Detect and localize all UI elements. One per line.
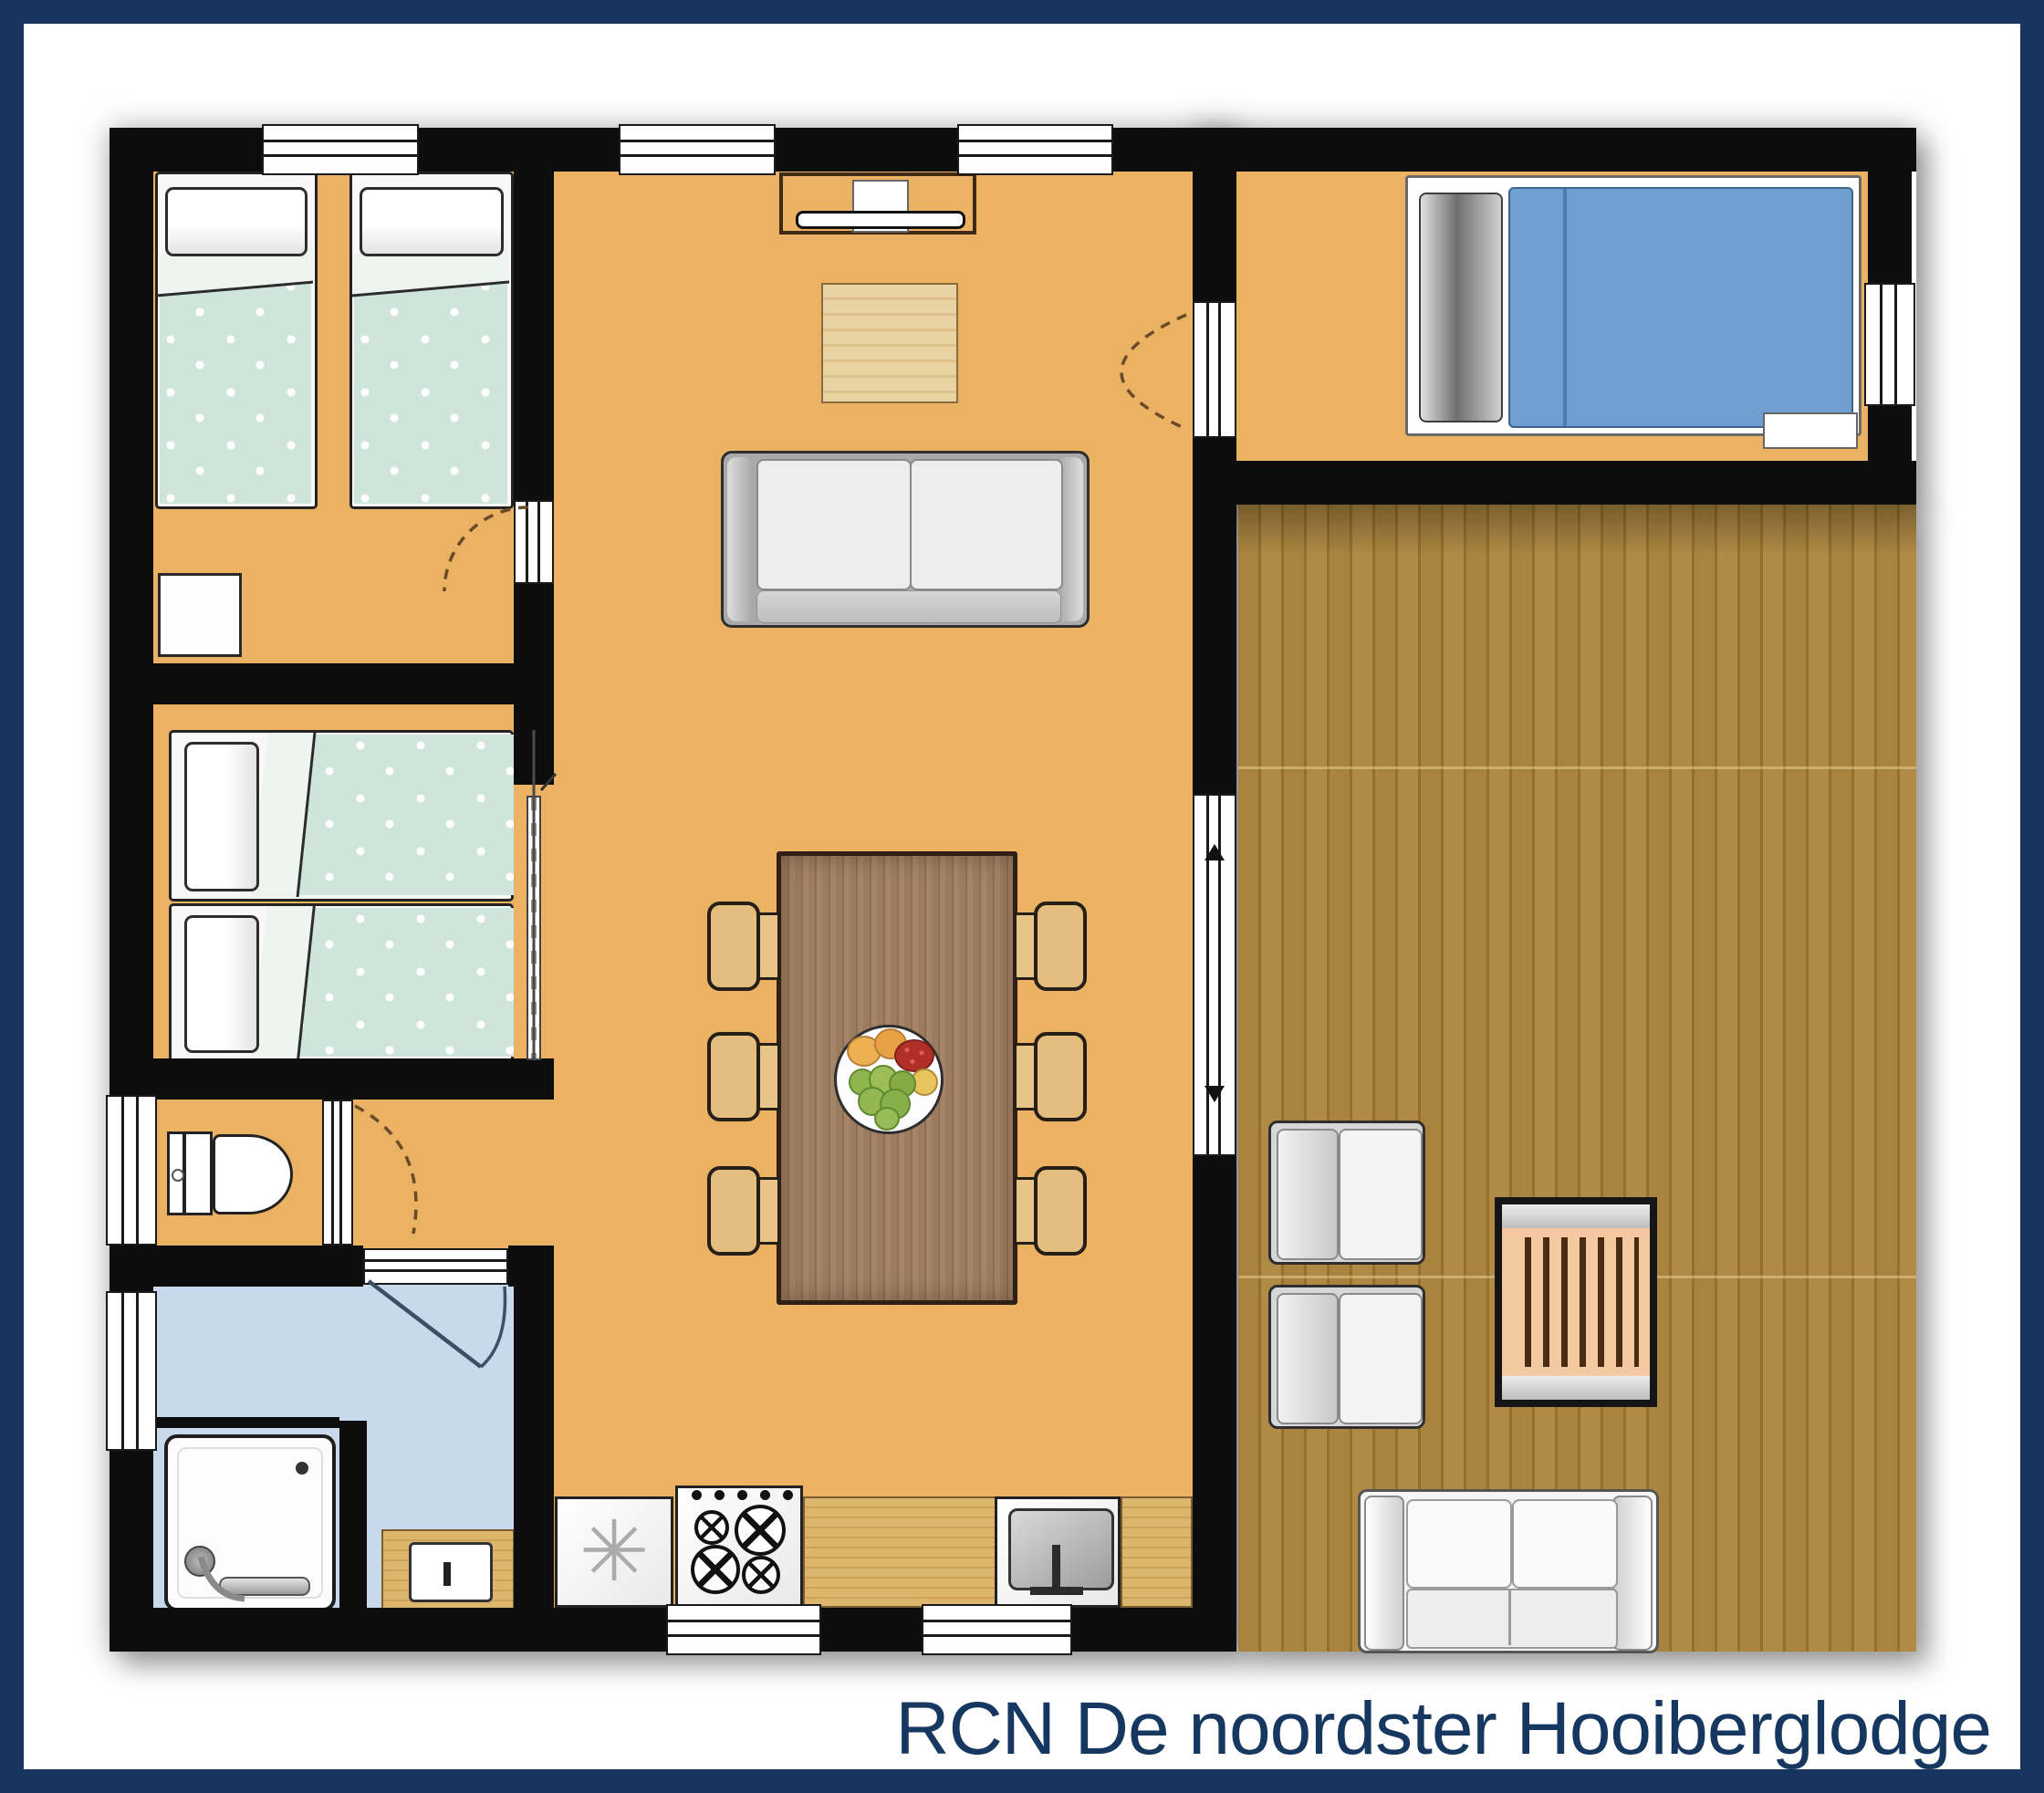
plan-title: RCN De noordster Hooiberglodge: [895, 1686, 1991, 1772]
kitchen-sink-unit: [995, 1496, 1121, 1608]
deck-chair: [1268, 1121, 1425, 1265]
deck-table-slats: [1513, 1237, 1639, 1367]
rug: [821, 283, 958, 403]
wall-shower-stub: [339, 1421, 367, 1608]
stove-burner: [735, 1505, 786, 1556]
sofa-backrest: [756, 590, 1061, 623]
bed-single: [169, 903, 514, 1063]
slide-arrow-up-icon: [1204, 844, 1225, 860]
door-living-bedroom: [1193, 301, 1236, 438]
deck-sofa-cushion: [1512, 1499, 1618, 1589]
deck-sofa-seat-divider: [1508, 1589, 1511, 1645]
sliding-door-bedroom2: [527, 796, 541, 1060]
wall-bedroom2-bottom: [109, 1058, 554, 1100]
wall-bathroom-top: [109, 1246, 363, 1287]
bathroom-tap: [443, 1562, 451, 1586]
window: [619, 124, 776, 175]
wall-bedroom-deck: [1193, 461, 1916, 505]
shower-tray: [164, 1434, 336, 1611]
bed-duvet-blue: [1508, 187, 1853, 428]
wall-living-right: [1193, 128, 1236, 301]
bed-duvet: [354, 273, 507, 504]
tv-cabinet: [779, 172, 976, 235]
door-bedroom1: [514, 500, 554, 584]
floor-plan-page: { "title": "RCN De noordster Hooiberglod…: [0, 0, 2044, 1793]
toilet-cistern: [167, 1131, 213, 1215]
shower-drain: [296, 1462, 308, 1475]
deck-plank-seam: [1238, 766, 1916, 769]
deck-chair-back: [1277, 1129, 1339, 1260]
deck-chair-seat: [1339, 1129, 1423, 1260]
bed-pillow: [165, 187, 308, 256]
deck-sofa-armrest: [1612, 1496, 1653, 1651]
stove-knobs: [685, 1490, 798, 1501]
dining-chair: [707, 1166, 760, 1256]
tv-screen: [796, 211, 965, 229]
bed-single: [349, 172, 514, 509]
shower-head: [184, 1546, 215, 1577]
door-toilet: [322, 1100, 353, 1246]
bed-pillow: [1419, 193, 1503, 422]
window: [957, 124, 1113, 175]
wall-bathroom-top: [508, 1246, 554, 1287]
kitchen-sink-basin: [1008, 1508, 1114, 1590]
deck-chair: [1268, 1285, 1425, 1429]
deck-table: [1495, 1197, 1657, 1407]
dining-chair: [1034, 1032, 1087, 1121]
deck-table-end: [1502, 1204, 1650, 1228]
dining-chair: [1034, 1166, 1087, 1256]
bathroom-sink: [409, 1542, 493, 1602]
bed-pillow: [184, 742, 259, 891]
bed-pillow: [360, 187, 504, 256]
deck-sofa-seat: [1406, 1589, 1618, 1649]
dining-chair: [707, 902, 760, 991]
freezer-icon: ✳: [579, 1510, 649, 1594]
wall-interior-vertical: [514, 1246, 554, 1608]
bed-duvet-seam: [1563, 189, 1567, 426]
bed-single: [155, 172, 318, 509]
dining-chair: [1034, 902, 1087, 991]
deck-sofa: [1358, 1489, 1659, 1653]
deck-sofa-cushion: [1406, 1499, 1512, 1589]
bed-step: [1763, 412, 1858, 449]
dining-chair: [707, 1032, 760, 1121]
kitchen-counter: [1121, 1496, 1193, 1608]
stove-burner: [691, 1545, 740, 1594]
window: [922, 1604, 1072, 1655]
wall-bedroom1-bottom: [109, 663, 554, 704]
bed-duvet: [287, 908, 514, 1057]
sofa-cushion: [910, 459, 1063, 590]
window: [106, 1095, 157, 1246]
wall-interior-vertical: [514, 172, 554, 500]
bed-duvet: [160, 273, 311, 504]
fruit-bowl: [834, 1025, 944, 1134]
stove-burner: [742, 1556, 780, 1594]
slide-arrow-down-icon: [1204, 1086, 1225, 1102]
shower-partition: [153, 1417, 339, 1428]
kitchen-faucet-handles: [1030, 1587, 1083, 1595]
bathroom-vanity: [381, 1529, 515, 1610]
deck-chair-seat: [1339, 1293, 1423, 1424]
shower-rail: [219, 1577, 310, 1596]
wall-living-right: [1193, 1156, 1236, 1652]
deck-table-end: [1502, 1376, 1650, 1400]
stove-burner: [694, 1510, 729, 1545]
fruit-berries: [894, 1039, 934, 1072]
bed-duvet: [287, 735, 514, 895]
kitchen-counter: [803, 1496, 996, 1608]
freezer: ✳: [555, 1496, 673, 1608]
deck-chair-back: [1277, 1293, 1339, 1424]
window: [262, 124, 419, 175]
bed-single: [169, 730, 514, 902]
sofa-cushion: [756, 459, 912, 590]
fruit-grape: [874, 1107, 900, 1131]
sofa-armrest: [727, 457, 753, 621]
bed-pillow: [184, 915, 259, 1053]
toilet-flush-button: [172, 1169, 184, 1182]
wall-bedroom-right: [1868, 128, 1912, 283]
deck-sofa-armrest: [1364, 1496, 1404, 1651]
window: [1864, 283, 1915, 406]
living-sofa: [721, 451, 1090, 628]
door-bathroom: [363, 1248, 508, 1285]
window: [106, 1291, 157, 1451]
window: [666, 1604, 821, 1655]
bed-frame: [1405, 175, 1861, 436]
stove: [675, 1485, 803, 1608]
deck-floor: [1238, 505, 1916, 1652]
bedside-cabinet: [158, 573, 242, 657]
